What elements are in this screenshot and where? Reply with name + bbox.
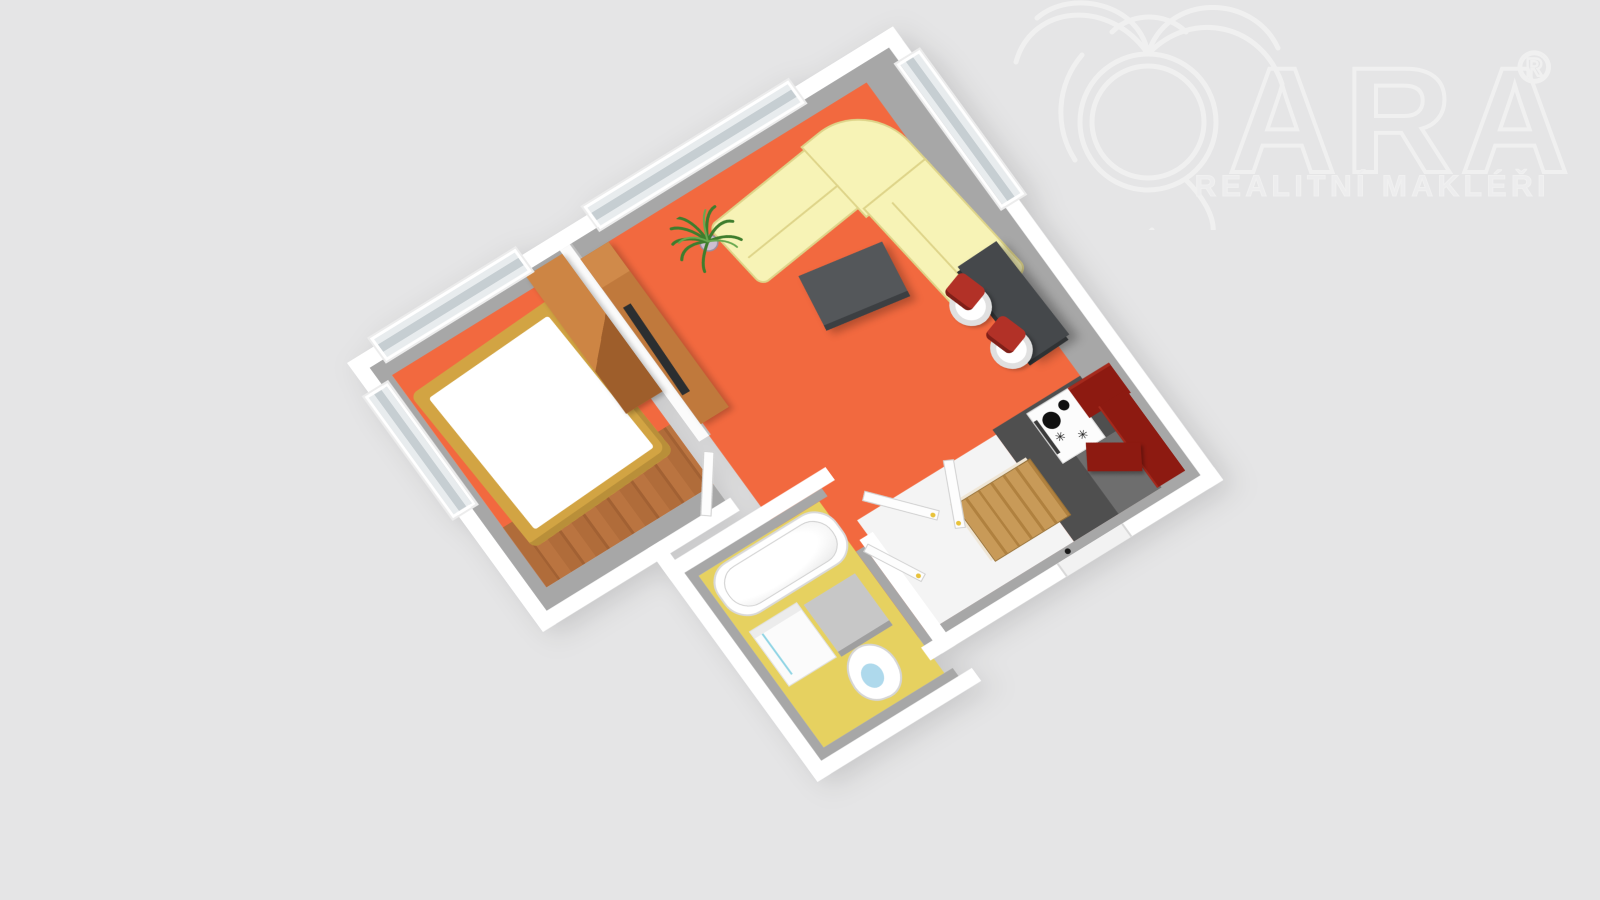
toilet-water xyxy=(857,660,889,691)
screenshot-stage: ARA ® REALITNÍ MAKLÉŘI xyxy=(0,0,1600,900)
logo-registered-mark: ® xyxy=(1518,43,1550,92)
stove-burner xyxy=(1056,398,1072,413)
stove-knob-icon: ✳ xyxy=(1052,429,1069,445)
stove-knob-icon: ✳ xyxy=(1074,426,1091,442)
door-handle xyxy=(915,573,922,580)
logo-subtitle: REALITNÍ MAKLÉŘI xyxy=(1195,169,1550,203)
door-handle xyxy=(930,512,936,518)
kitchen-cabinet-red xyxy=(1086,442,1143,471)
door-handle xyxy=(956,521,962,526)
watermark-logo: ARA ® REALITNÍ MAKLÉŘI xyxy=(990,0,1600,230)
